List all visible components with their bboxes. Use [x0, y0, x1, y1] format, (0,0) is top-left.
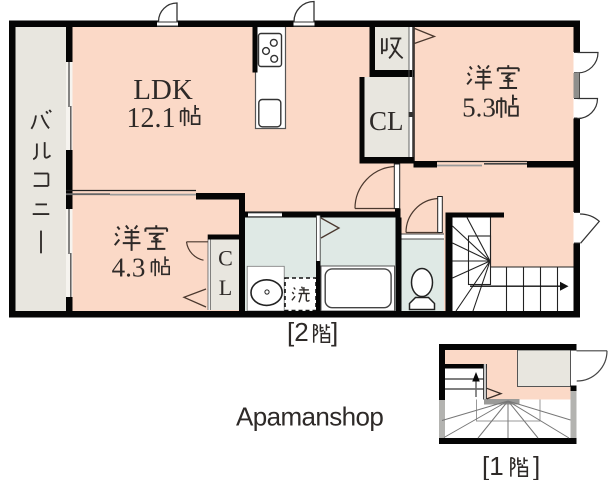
- svg-text:]: ]: [533, 451, 540, 480]
- svg-text:12.1: 12.1: [127, 103, 176, 134]
- svg-text:CL: CL: [369, 106, 404, 136]
- svg-text:[1: [1: [482, 451, 504, 480]
- svg-text:5.3: 5.3: [462, 93, 496, 123]
- svg-text:4.3: 4.3: [112, 253, 146, 283]
- svg-text:C: C: [218, 246, 233, 271]
- svg-text:]: ]: [331, 317, 338, 347]
- svg-text:L: L: [219, 275, 232, 300]
- svg-text:[2: [2: [287, 317, 309, 347]
- svg-text:LDK: LDK: [133, 74, 193, 106]
- svg-text:Apamanshop: Apamanshop: [236, 402, 383, 432]
